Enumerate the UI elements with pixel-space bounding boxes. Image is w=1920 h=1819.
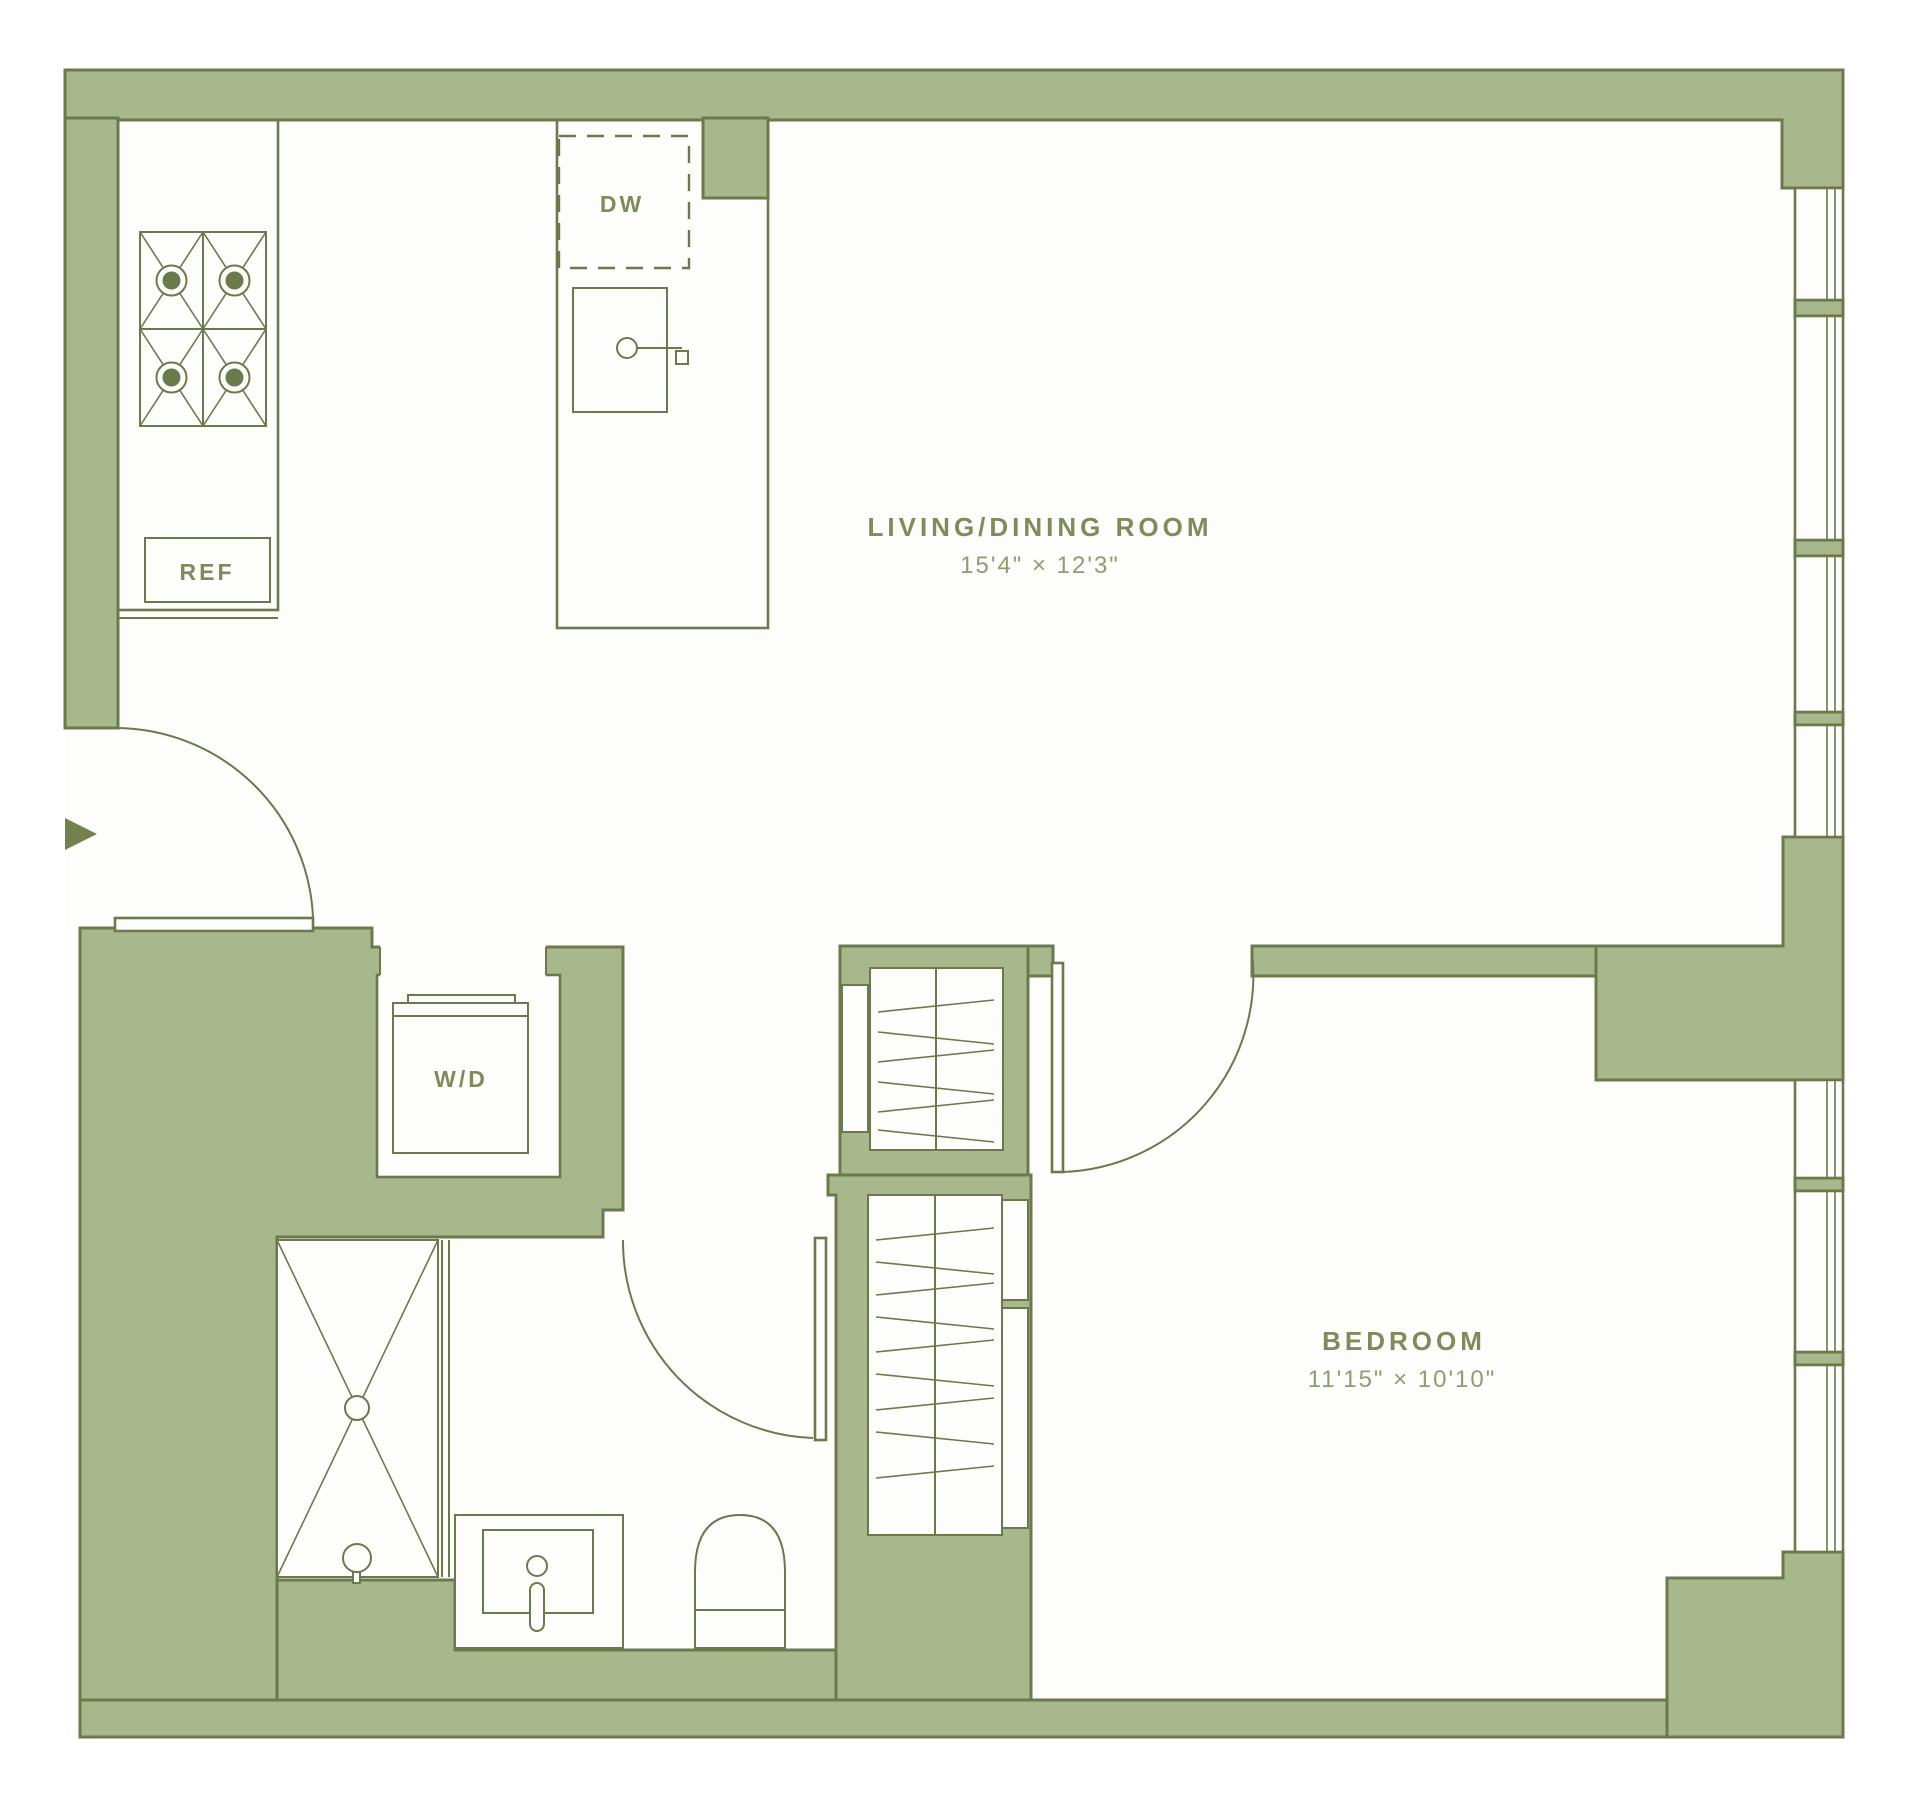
window	[1795, 188, 1843, 300]
dishwasher-label: DW	[600, 191, 644, 217]
closet-upper	[842, 968, 1003, 1150]
window	[1795, 1365, 1843, 1552]
living-dining-room-dimensions: 15'4" × 12'3"	[960, 552, 1120, 579]
closet-lower-door	[1002, 1308, 1028, 1528]
washer-dryer-label: W/D	[434, 1066, 488, 1092]
refrigerator: REF	[145, 538, 270, 602]
wall-bedroom-segment	[1252, 946, 1596, 976]
window	[1795, 316, 1843, 540]
bathroom-door-leaf	[815, 1238, 826, 1440]
living-dining-room-label: LIVING/DINING ROOM	[868, 512, 1213, 542]
window	[1795, 1080, 1843, 1178]
wall-bottom	[80, 1700, 1667, 1737]
bedroom-label: BEDROOM	[1322, 1326, 1486, 1356]
sink-faucet	[617, 338, 637, 358]
window	[1795, 725, 1843, 837]
washer-dryer-closet: W/D	[377, 944, 560, 1177]
bathroom-shower	[277, 1240, 449, 1583]
closet-upper-door	[842, 985, 868, 1132]
floor-plan-page: REF DW W/D	[0, 0, 1920, 1819]
window-mullion	[1795, 1352, 1843, 1365]
wall-bedroom-se-block	[1667, 1552, 1843, 1737]
window-mullion	[1795, 300, 1843, 316]
window-mullion	[1795, 540, 1843, 556]
window-mullion	[1795, 712, 1843, 725]
window-mullion	[1795, 1178, 1843, 1191]
entry-door-leaf	[115, 918, 313, 931]
kitchen-stove	[140, 232, 266, 426]
window	[1795, 556, 1843, 712]
bedroom-door-leaf	[1052, 963, 1063, 1172]
toilet	[695, 1515, 785, 1648]
bathroom-vanity-sink	[455, 1515, 623, 1648]
sink-faucet	[527, 1556, 547, 1576]
refrigerator-label: REF	[180, 559, 235, 585]
wall-hall-segment	[1028, 946, 1053, 976]
floor-plan: REF DW W/D	[0, 0, 1920, 1819]
closet-lower	[868, 1195, 1028, 1535]
bedroom-dimensions: 11'15" × 10'10"	[1308, 1366, 1497, 1393]
wall-left	[65, 118, 118, 728]
closet-lower-door	[1002, 1200, 1028, 1300]
wall-island-stub	[703, 118, 768, 198]
window	[1795, 1191, 1843, 1352]
shower-drain	[343, 1544, 371, 1572]
